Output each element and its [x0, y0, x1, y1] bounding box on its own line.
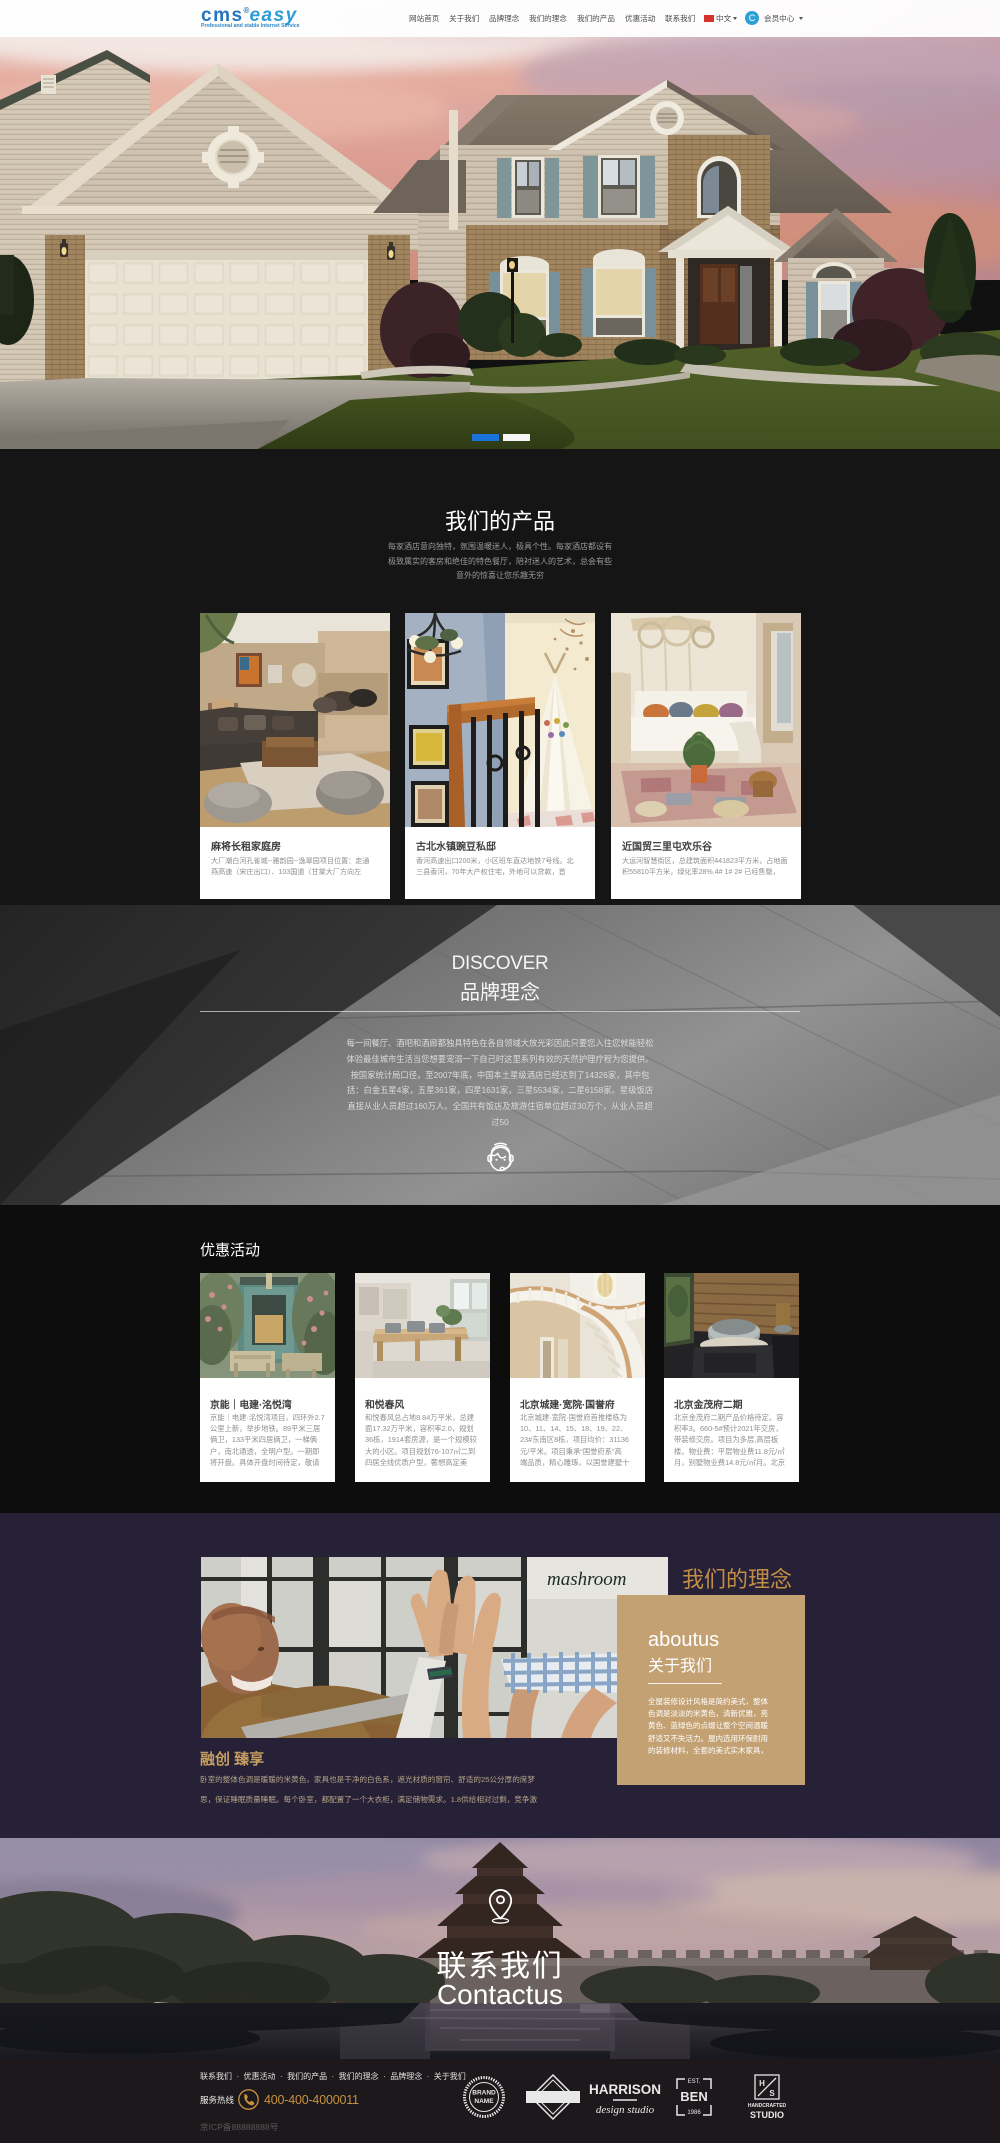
svg-text:HANDCRAFTED: HANDCRAFTED [748, 2103, 787, 2109]
svg-text:EST.: EST. [688, 2079, 701, 2085]
svg-text:HARRISON: HARRISON [589, 2082, 661, 2097]
svg-text:NAME: NAME [474, 2098, 494, 2105]
svg-text:STUDIO: STUDIO [750, 2110, 784, 2120]
svg-text:S: S [769, 2089, 775, 2098]
svg-text:BRAND: BRAND [472, 2090, 496, 2097]
svg-text:1986: 1986 [687, 2110, 701, 2116]
svg-text:H: H [759, 2079, 765, 2088]
svg-text:design studio: design studio [596, 2104, 655, 2116]
svg-text:BEN: BEN [680, 2089, 707, 2104]
svg-text:mashroom: mashroom [547, 1569, 627, 1590]
